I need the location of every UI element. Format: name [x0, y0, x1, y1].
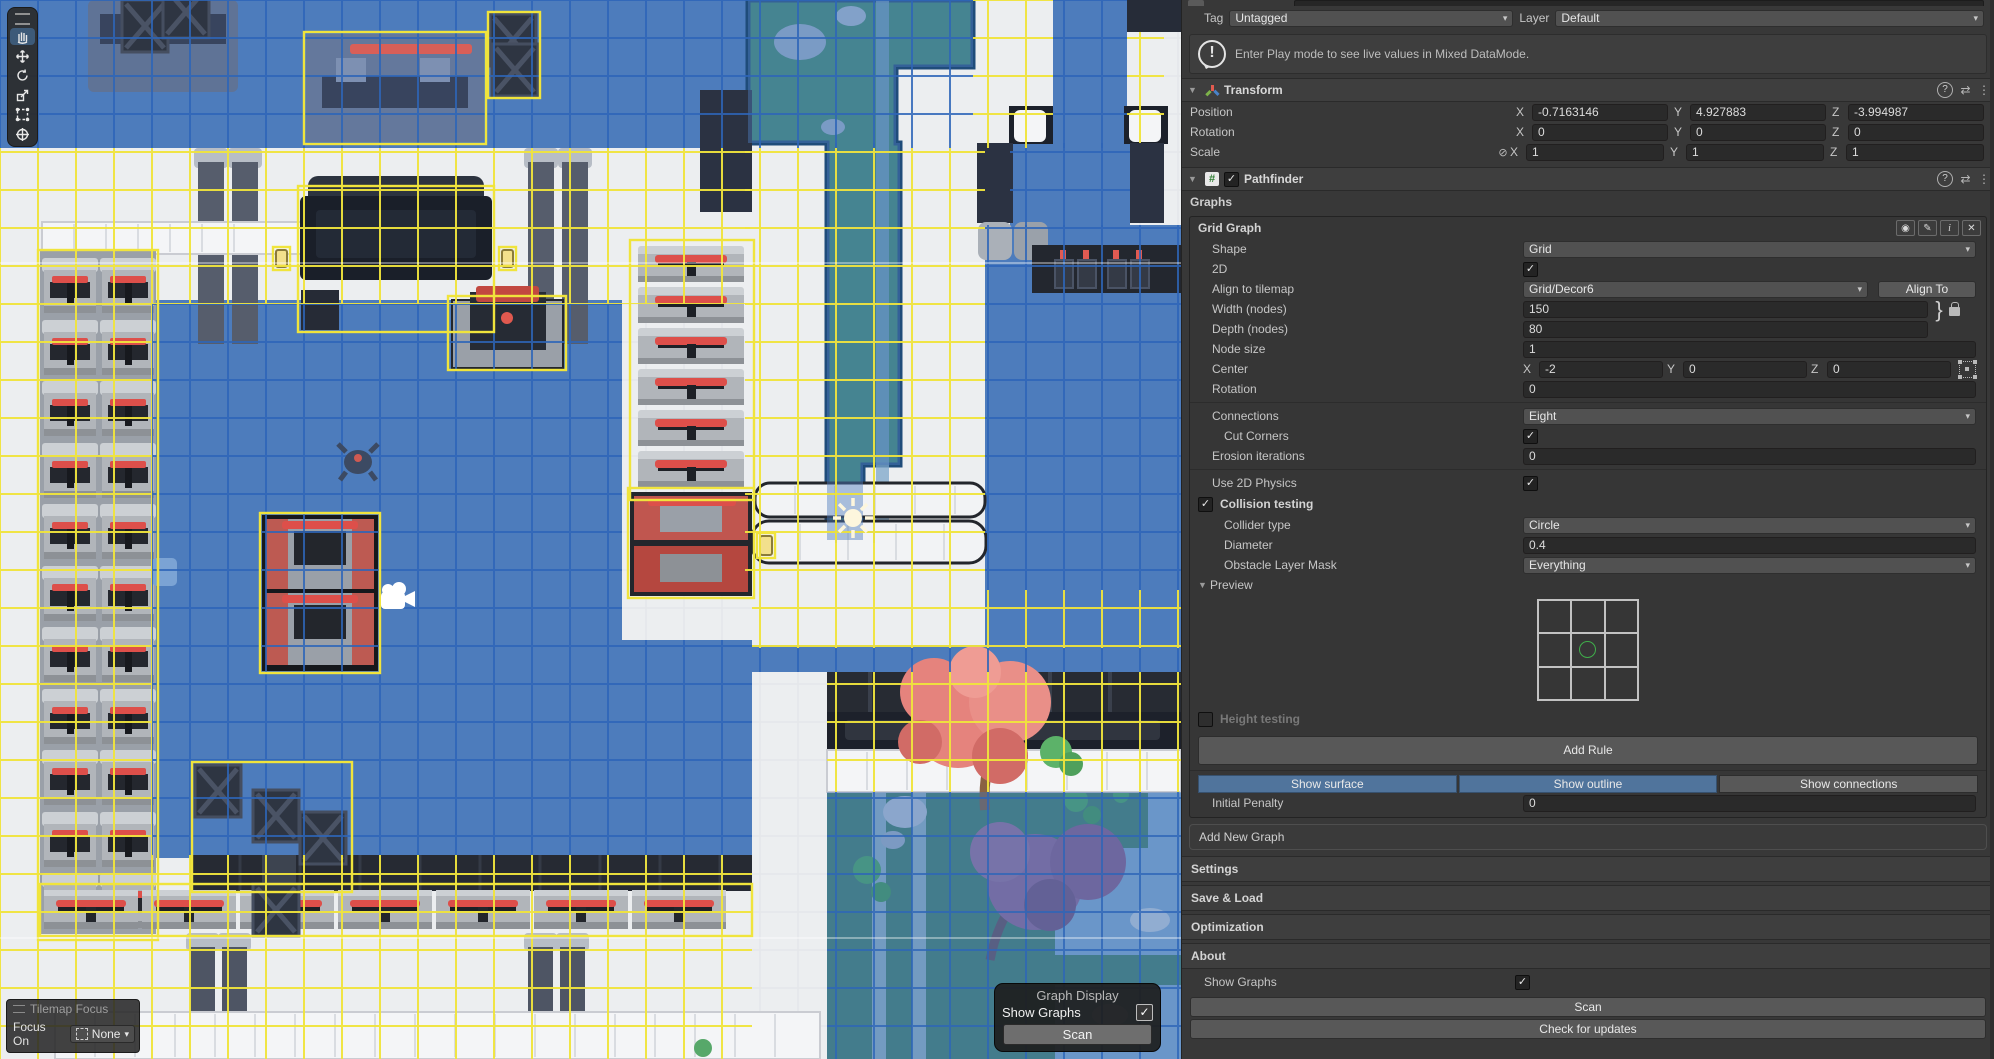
focus-on-dropdown[interactable]: None ▾ — [70, 1025, 135, 1043]
pathfinder-title: Pathfinder — [1244, 172, 1932, 186]
collider-type-label: Collider type — [1198, 518, 1523, 532]
obstacle-layer-mask-dropdown[interactable]: Everything▾ — [1523, 557, 1976, 574]
align-to-button[interactable]: Align To — [1878, 281, 1976, 298]
diameter-label: Diameter — [1198, 538, 1523, 552]
scan-button[interactable]: Scan — [1190, 997, 1986, 1017]
erosion-field[interactable]: 0 — [1523, 448, 1976, 465]
tag-layer-row: Tag Untagged ▾ Layer Default ▾ — [1182, 6, 1994, 30]
chevron-down-icon: ▾ — [1973, 11, 1978, 26]
scale-tool-button[interactable] — [10, 86, 35, 104]
z-axis-label: Z — [1830, 145, 1842, 159]
transform-tool-button[interactable] — [10, 125, 35, 143]
2d-label: 2D — [1198, 262, 1523, 276]
x-axis-label: X — [1510, 145, 1522, 159]
preview-label: Preview — [1210, 578, 1253, 592]
link-brace: } — [1932, 302, 1946, 317]
rotate-icon — [15, 68, 30, 83]
y-axis-label: Y — [1674, 125, 1686, 139]
rect-tool-button[interactable] — [10, 106, 35, 124]
graph-display-overlay: Graph Display Show Graphs ✓ Scan — [994, 983, 1161, 1052]
tag-dropdown[interactable]: Untagged ▾ — [1229, 10, 1513, 27]
scene-view[interactable]: Tilemap Focus Focus On None ▾ Graph Disp… — [0, 0, 1181, 1059]
snap-selection-icon[interactable] — [1959, 361, 1976, 378]
layer-dropdown[interactable]: Default ▾ — [1555, 10, 1984, 27]
show-graphs-checkbox[interactable]: ✓ — [1136, 1004, 1153, 1021]
transform-icon — [1205, 83, 1219, 97]
scale-y-field[interactable]: 1 — [1686, 144, 1824, 161]
layer-label: Layer — [1519, 11, 1549, 25]
light-gizmo-icon[interactable] — [833, 498, 873, 538]
rect-tool-icon — [15, 107, 30, 122]
chevron-down-icon: ▾ — [1503, 11, 1508, 26]
gameobject-header-stub — [1182, 0, 1994, 6]
focus-on-value: None — [92, 1027, 121, 1041]
x-axis-label: X — [1516, 105, 1528, 119]
playmode-help-box: ! Enter Play mode to see live values in … — [1189, 34, 1987, 74]
move-icon — [15, 49, 30, 64]
rotate-tool-button[interactable] — [10, 67, 35, 85]
rotation-x-field[interactable]: 0 — [1532, 124, 1668, 141]
help-text: Enter Play mode to see live values in Mi… — [1235, 47, 1529, 61]
position-label: Position — [1190, 105, 1516, 119]
z-axis-label: Z — [1832, 125, 1844, 139]
use-2d-physics-label: Use 2D Physics — [1198, 476, 1523, 490]
presets-icon[interactable]: ⇄ — [1958, 172, 1973, 186]
graph-rotation-label: Rotation — [1198, 382, 1523, 396]
layer-value: Default — [1561, 11, 1973, 26]
section-about[interactable]: About — [1182, 943, 1994, 969]
graph-display-title: Graph Display — [1002, 988, 1153, 1003]
position-z-field[interactable]: -3.994987 — [1848, 104, 1984, 121]
check-for-updates-button[interactable]: Check for updates — [1190, 1019, 1986, 1039]
erosion-label: Erosion iterations — [1198, 449, 1523, 463]
graphs-label: Graphs — [1190, 195, 1232, 209]
scene-tools-overlay — [7, 7, 38, 147]
foldout-icon[interactable]: ▼ — [1188, 85, 1200, 95]
width-nodes-field[interactable]: 150 — [1523, 301, 1928, 318]
pathfinder-header[interactable]: ▼ # ✓ Pathfinder ? ⇄ ⋮ — [1182, 167, 1994, 191]
graph-info-icon[interactable]: i — [1940, 220, 1959, 236]
center-y-field[interactable]: 0 — [1683, 361, 1807, 378]
center-label: Center — [1198, 362, 1523, 376]
shape-label: Shape — [1198, 242, 1523, 256]
collision-preview-grid — [1537, 599, 1639, 701]
depth-nodes-label: Depth (nodes) — [1198, 322, 1523, 336]
scale-z-field[interactable]: 1 — [1846, 144, 1984, 161]
connections-label: Connections — [1198, 409, 1523, 423]
foldout-icon[interactable]: ▼ — [1188, 174, 1200, 184]
link-scale-icon[interactable]: ⊘ — [1496, 146, 1510, 159]
scale-x-field[interactable]: 1 — [1526, 144, 1664, 161]
initial-penalty-field[interactable]: 0 — [1523, 795, 1976, 812]
kebab-menu-icon[interactable]: ⋮ — [1978, 172, 1988, 186]
collision-preview — [1190, 595, 1986, 707]
scan-button-overlay[interactable]: Scan — [1003, 1024, 1152, 1045]
x-axis-label: X — [1516, 125, 1528, 139]
pathfinder-enabled-checkbox[interactable]: ✓ — [1224, 172, 1239, 187]
show-graphs-label: Show Graphs — [1190, 975, 1515, 989]
node-size-label: Node size — [1198, 342, 1523, 356]
gameobject-name-field[interactable] — [1294, 0, 1984, 6]
collision-testing-checkbox[interactable]: ✓ — [1198, 497, 1213, 512]
section-save-load[interactable]: Save & Load — [1182, 885, 1994, 911]
help-icon[interactable]: ? — [1937, 171, 1953, 187]
center-z-field[interactable]: 0 — [1827, 361, 1951, 378]
scale-icon — [15, 88, 30, 103]
collider-type-dropdown[interactable]: Circle▾ — [1523, 517, 1976, 534]
position-x-field[interactable]: -0.7163146 — [1532, 104, 1668, 121]
help-icon[interactable]: ? — [1937, 82, 1953, 98]
section-settings[interactable]: Settings — [1182, 856, 1994, 882]
graph-edit-icon[interactable]: ✎ — [1918, 220, 1937, 236]
tilemap-focus-title: Tilemap Focus — [30, 1002, 108, 1016]
graph-delete-icon[interactable]: ✕ — [1962, 220, 1981, 236]
transform-title: Transform — [1224, 83, 1932, 97]
presets-icon[interactable]: ⇄ — [1958, 83, 1973, 97]
align-tilemap-dropdown[interactable]: Grid/Decor6▾ — [1523, 281, 1868, 298]
info-icon: ! — [1198, 40, 1226, 68]
obstacle-layer-mask-label: Obstacle Layer Mask — [1198, 558, 1523, 572]
move-tool-button[interactable] — [10, 47, 35, 65]
section-optimization[interactable]: Optimization — [1182, 914, 1994, 940]
hand-tool-button[interactable] — [10, 28, 35, 46]
show-connections-button[interactable]: Show connections — [1719, 775, 1978, 793]
use-2d-physics-checkbox[interactable]: ✓ — [1523, 476, 1538, 491]
show-graphs-checkbox[interactable]: ✓ — [1515, 975, 1530, 990]
inspector-panel: Tag Untagged ▾ Layer Default ▾ ! Enter P… — [1181, 0, 1994, 1059]
chevron-down-icon: ▾ — [124, 1029, 129, 1040]
height-testing-label: Height testing — [1220, 712, 1300, 726]
rotation-row: Rotation X0 Y0 Z0 — [1182, 122, 1994, 142]
overlay-drag-handle-icon[interactable] — [13, 1005, 25, 1013]
collision-testing-label: Collision testing — [1220, 497, 1313, 511]
position-y-field[interactable]: 4.927883 — [1690, 104, 1826, 121]
node-size-field[interactable]: 1 — [1523, 341, 1976, 358]
show-graphs-label: Show Graphs — [1002, 1005, 1081, 1020]
rotation-y-field[interactable]: 0 — [1690, 124, 1826, 141]
y-axis-label: Y — [1674, 105, 1686, 119]
2d-checkbox[interactable]: ✓ — [1523, 262, 1538, 277]
transform-icon — [15, 127, 30, 142]
depth-nodes-field[interactable]: 80 — [1523, 321, 1928, 338]
shape-dropdown[interactable]: Grid▾ — [1523, 241, 1976, 258]
preview-foldout[interactable]: ▼ Preview — [1190, 575, 1986, 595]
collision-preview-node — [1579, 641, 1596, 658]
initial-penalty-label: Initial Penalty — [1198, 796, 1523, 810]
y-axis-label: Y — [1670, 145, 1682, 159]
focus-on-label: Focus On — [13, 1020, 65, 1048]
transform-header[interactable]: ▼ Transform ? ⇄ ⋮ — [1182, 78, 1994, 102]
unity-editor-window: Tilemap Focus Focus On None ▾ Graph Disp… — [0, 0, 1994, 1059]
show-outline-button[interactable]: Show outline — [1459, 775, 1718, 793]
graph-visibility-icon[interactable]: ◉ — [1896, 220, 1915, 236]
connections-dropdown[interactable]: Eight▾ — [1523, 408, 1976, 425]
position-row: Position X-0.7163146 Y4.927883 Z-3.99498… — [1182, 102, 1994, 122]
center-x-field[interactable]: -2 — [1539, 361, 1663, 378]
rotation-z-field[interactable]: 0 — [1848, 124, 1984, 141]
script-icon: # — [1205, 172, 1219, 186]
graph-display-segmented: Show surface Show outline Show connectio… — [1198, 775, 1978, 793]
focus-target-icon — [76, 1028, 88, 1040]
add-new-graph-button[interactable]: Add New Graph — [1189, 824, 1987, 850]
show-surface-button[interactable]: Show surface — [1198, 775, 1457, 793]
diameter-field[interactable]: 0.4 — [1523, 537, 1976, 554]
scale-row: Scale ⊘ X1 Y1 Z1 — [1182, 142, 1994, 162]
z-axis-label: Z — [1832, 105, 1844, 119]
foldout-icon[interactable]: ▼ — [1198, 580, 1210, 590]
inspector-right-edge — [1990, 0, 1994, 1059]
tag-value: Untagged — [1235, 11, 1502, 26]
grid-graph-title: Grid Graph — [1198, 221, 1893, 235]
align-to-tilemap-label: Align to tilemap — [1198, 282, 1523, 296]
tag-label: Tag — [1204, 11, 1223, 25]
tilemap-focus-overlay: Tilemap Focus Focus On None ▾ — [6, 999, 140, 1053]
scale-label: Scale — [1190, 145, 1496, 159]
hand-icon — [15, 29, 30, 44]
graph-rotation-field[interactable]: 0 — [1523, 381, 1976, 398]
cut-corners-checkbox[interactable]: ✓ — [1523, 429, 1538, 444]
height-testing-checkbox[interactable] — [1198, 712, 1213, 727]
add-rule-button[interactable]: Add Rule — [1198, 736, 1978, 765]
scene-canvas[interactable] — [0, 0, 1181, 1059]
gameobject-icon — [1188, 0, 1204, 6]
rotation-label: Rotation — [1190, 125, 1516, 139]
grid-graph-panel: Grid Graph ◉ ✎ i ✕ Shape Grid▾ 2D ✓ Alig… — [1189, 216, 1987, 818]
overlay-drag-handle-icon[interactable] — [15, 13, 30, 25]
cut-corners-label: Cut Corners — [1198, 429, 1523, 443]
kebab-menu-icon[interactable]: ⋮ — [1978, 83, 1988, 97]
width-nodes-label: Width (nodes) — [1198, 302, 1523, 316]
lock-icon[interactable] — [1949, 307, 1960, 316]
